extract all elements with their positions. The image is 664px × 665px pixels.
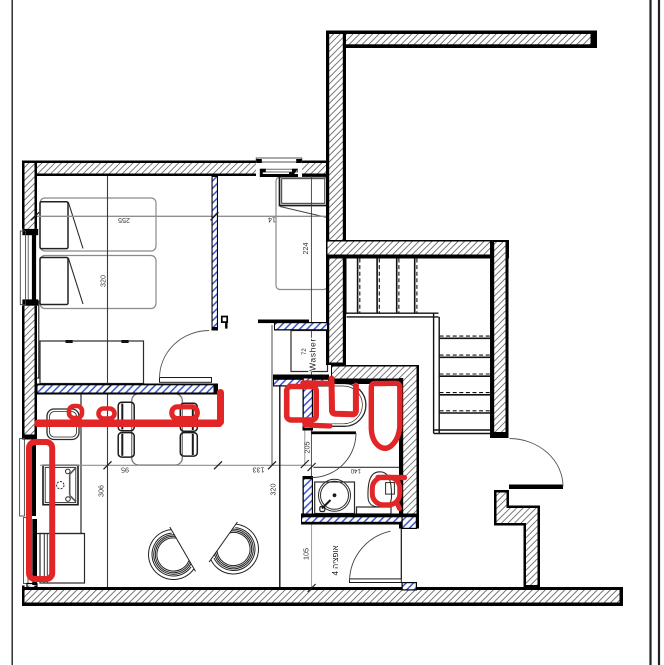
svg-text:Washer: Washer [308,338,318,371]
svg-text:105: 105 [302,548,311,560]
svg-text:320: 320 [99,275,108,287]
svg-text:95: 95 [121,466,129,475]
svg-text:אופציה 4: אופציה 4 [331,545,340,575]
svg-text:140: 140 [350,467,361,474]
svg-text:306: 306 [97,485,106,497]
svg-text:224: 224 [301,243,310,255]
svg-text:133: 133 [253,466,265,475]
svg-text:320: 320 [269,484,278,496]
svg-text:255: 255 [118,216,130,225]
svg-text:205: 205 [303,442,312,454]
svg-text:14: 14 [268,216,276,225]
